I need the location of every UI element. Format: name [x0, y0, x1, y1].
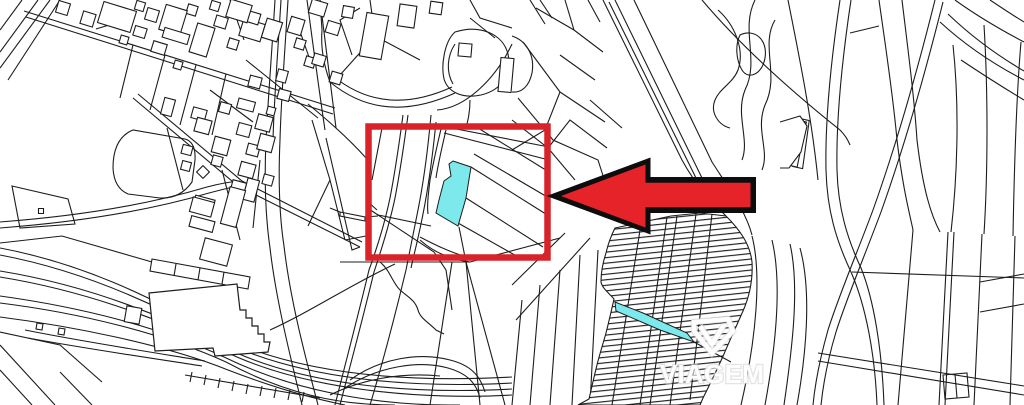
- svg-text:VIAGEM: VIAGEM: [660, 359, 764, 389]
